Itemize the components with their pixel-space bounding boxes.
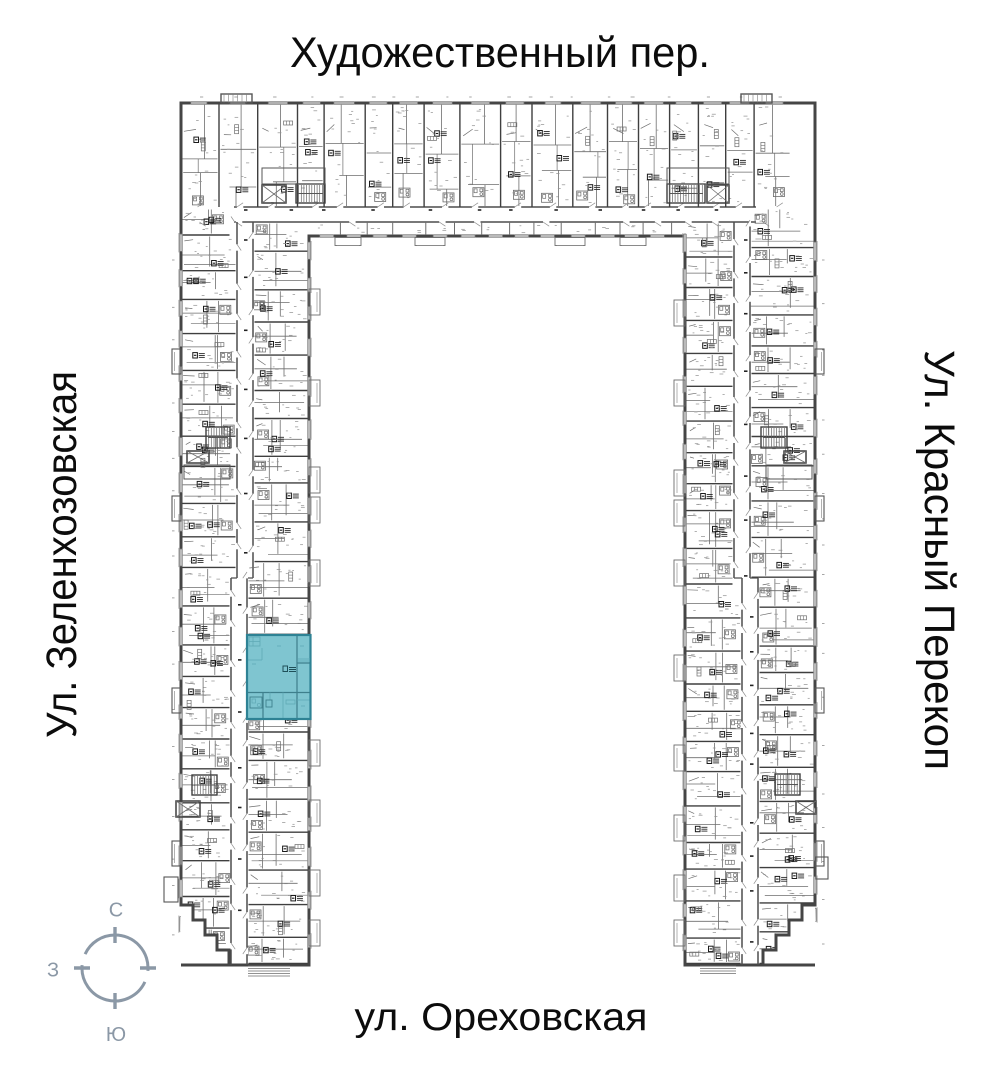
svg-text:Ю: Ю <box>106 1024 126 1046</box>
svg-text:Ул. Красный Перекоп: Ул. Красный Перекоп <box>915 350 963 770</box>
svg-text:ул. Ореховская: ул. Ореховская <box>355 996 648 1039</box>
svg-text:С: С <box>109 900 123 922</box>
svg-text:Ул. Зеленхозовская: Ул. Зеленхозовская <box>38 371 86 738</box>
svg-text:З: З <box>47 960 59 982</box>
svg-text:Художественный пер.: Художественный пер. <box>290 29 710 77</box>
